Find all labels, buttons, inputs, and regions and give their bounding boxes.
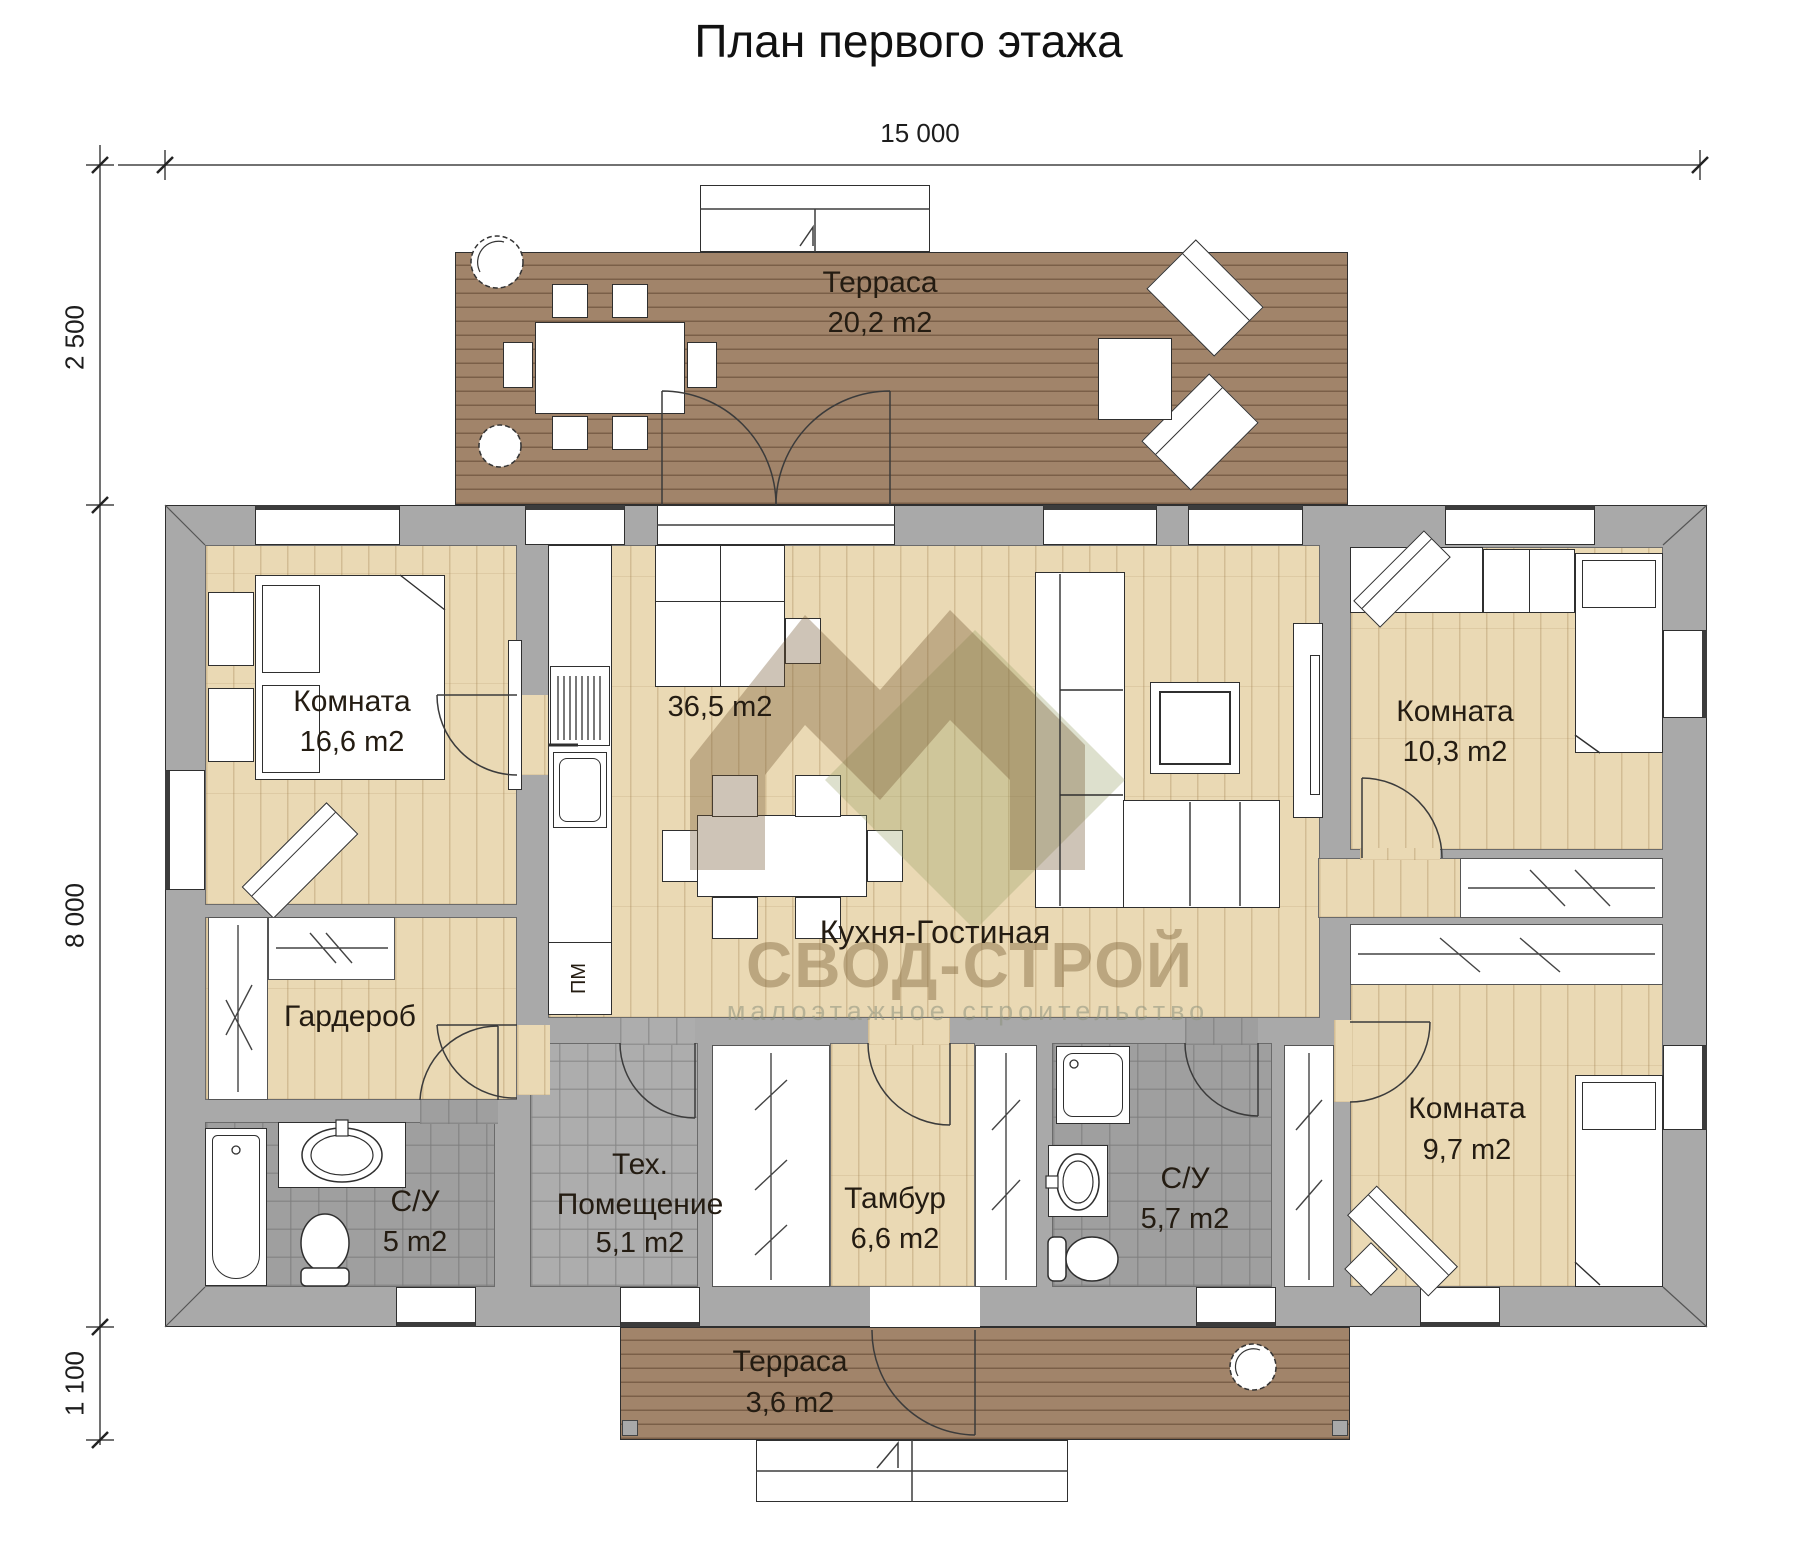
closet-bedroom-bottom-right [1350,924,1663,985]
window [1043,505,1157,545]
kitchen-sink [553,752,607,828]
nightstand [208,592,254,666]
door-opening-vestibule [868,1018,950,1045]
kitchen-tall-cabinet [655,545,785,687]
window [1663,1045,1707,1130]
label-bathroom-right-name: С/У [1135,1162,1235,1195]
label-terrace-bottom-name: Терраса [690,1345,890,1378]
pillow [1582,1082,1656,1130]
dining-chair [867,830,903,882]
dining-chair [662,830,698,882]
dishwasher: ПМ [548,942,612,1015]
coffee-table [1150,682,1240,774]
label-bathroom-left-name: С/У [365,1185,465,1218]
wardrobe-cabinet [1483,549,1575,613]
label-bedroom-br-name: Комната [1367,1092,1567,1125]
dim-terrace-depth: 2 500 [60,278,91,398]
terrace-bottom-deck [620,1327,1350,1440]
door-opening-wardrobe [517,1025,550,1095]
label-kitchen-area: 36,5 m2 [640,692,800,724]
door-opening-bedroom-top-right [1360,848,1440,860]
dim-house-depth: 8 000 [60,856,91,976]
sink-counter [278,1122,406,1188]
label-bedroom-tr-name: Комната [1355,695,1555,728]
terrace-chair [687,342,717,388]
label-bathroom-left-area: 5 m2 [363,1227,467,1259]
page-title: План первого этажа [0,14,1817,68]
closet-corridor [1460,858,1663,918]
label-bedroom-br-area: 9,7 m2 [1375,1135,1559,1167]
tv-panel [508,640,522,790]
label-bedroom-tr-area: 10,3 m2 [1360,737,1550,769]
label-terrace-bottom-area: 3,6 m2 [705,1388,875,1420]
door-opening-bedroom-bottom-right [1334,1020,1352,1102]
stove [550,666,610,746]
bathtub [205,1128,267,1286]
french-door-terrace [657,505,895,545]
pillow [262,585,320,673]
window [525,505,625,545]
sink-counter [1048,1145,1108,1217]
terrace-side-table [1098,338,1172,420]
terrace-dining-table [535,322,685,414]
sofa-chaise [1123,800,1280,908]
door-opening-bathroom-right [1185,1018,1258,1045]
sofa [1035,572,1125,908]
shower-tray [1056,1046,1130,1124]
window [1420,1287,1500,1327]
label-terrace-top-name: Терраса [780,266,980,299]
dim-total-width: 15 000 [860,118,980,149]
terrace-chair [503,342,533,388]
dim-porch-depth: 1 100 [60,1324,91,1444]
terrace-chair [612,416,648,450]
label-bedroom-left-name: Комната [252,685,452,718]
terrace-chair [612,284,648,318]
label-bathroom-right-area: 5,7 m2 [1120,1204,1250,1236]
steps-top [700,185,930,252]
door-opening-tech [620,1018,695,1045]
vestibule-closet-right [975,1045,1037,1287]
window [1196,1287,1276,1327]
label-tech-name1: Тех. [560,1148,720,1181]
kitchen-shelf [785,618,821,664]
terrace-chair [552,416,588,450]
label-vestibule-name: Тамбур [810,1182,980,1215]
label-bedroom-left-area: 16,6 m2 [252,727,452,759]
corridor-closet-strip [1284,1045,1334,1287]
terrace-post [622,1420,638,1436]
terrace-post [1332,1420,1348,1436]
label-kitchen-living-name: Кухня-Гостиная [795,915,1075,950]
window [255,505,400,545]
terrace-chair [552,284,588,318]
window [1188,505,1303,545]
steps-bottom [756,1440,1068,1502]
dining-chair [712,897,758,939]
dishwasher-label: ПМ [568,963,591,994]
tv-screen [1310,655,1320,795]
dining-table [697,815,867,897]
wardrobe-closet-top [268,917,395,980]
pillow [1582,560,1656,608]
window [396,1287,476,1327]
label-tech-area: 5,1 m2 [560,1228,720,1260]
label-terrace-top-area: 20,2 m2 [780,308,980,340]
window [1445,505,1595,545]
window [1663,630,1707,718]
window [165,770,205,890]
dining-chair [795,775,841,817]
label-tech-name2: Помещение [530,1188,750,1221]
nightstand [208,688,254,762]
window [620,1287,700,1327]
dining-chair [712,775,758,817]
floor-plan-canvas: План первого этажа 15 000 2 500 8 000 1 … [0,0,1817,1553]
door-opening-bathroom-left [420,1100,498,1124]
label-vestibule-area: 6,6 m2 [812,1224,978,1256]
door-opening-entry [870,1287,980,1327]
label-wardrobe-name: Гардероб [250,1000,450,1033]
